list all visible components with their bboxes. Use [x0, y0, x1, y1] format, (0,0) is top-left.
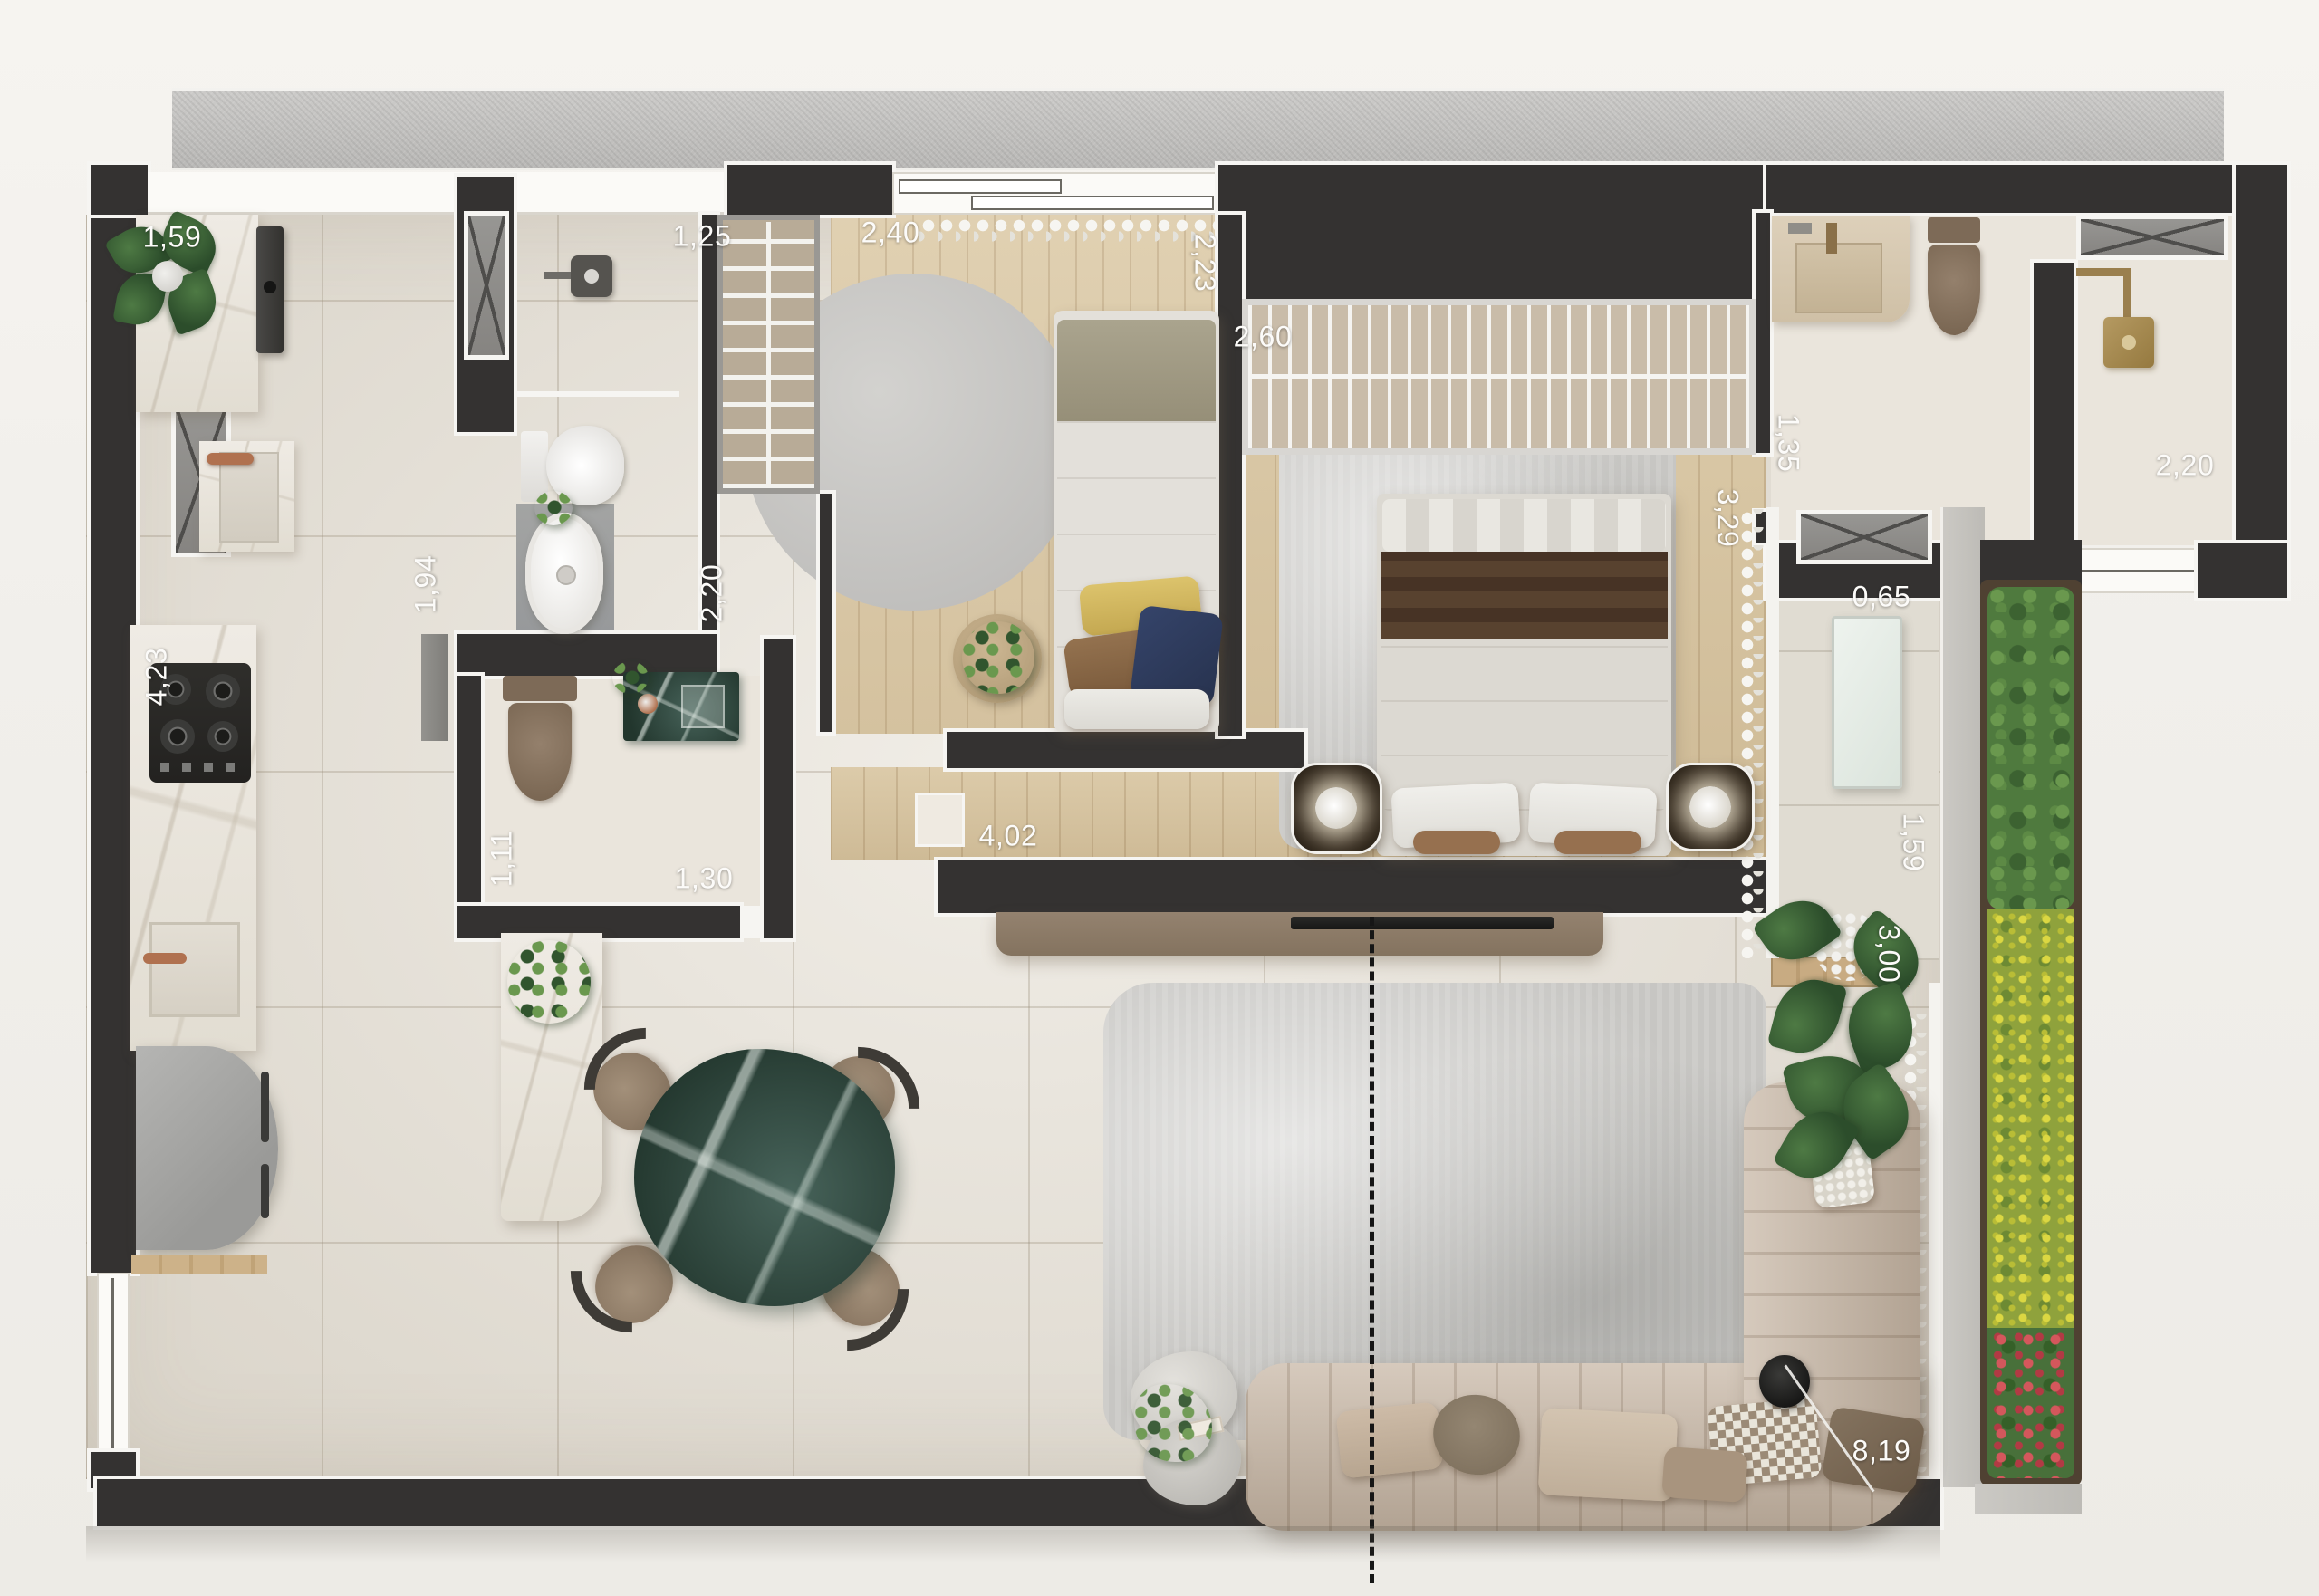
master-duvet	[1381, 639, 1668, 811]
showerhead-center	[584, 269, 599, 284]
bath1-shower-arm	[544, 272, 571, 279]
fridge-handle	[261, 1072, 269, 1142]
window-annex	[2071, 548, 2198, 593]
vanity-accessory	[1788, 223, 1812, 234]
kitchen-sink-2	[149, 922, 240, 1017]
dimension-label: 0,65	[1852, 581, 1911, 614]
sofa-pillow-3	[1538, 1408, 1679, 1502]
kitchen-sink-faucet-copper	[207, 453, 254, 465]
bed2-blanket-olive	[1057, 320, 1216, 421]
dimension-label: 2,20	[2156, 449, 2215, 483]
wall-bedroom2-south	[947, 732, 1304, 768]
dimension-label: 2,20	[696, 564, 729, 623]
garden-shrubs	[1987, 587, 2074, 909]
kitchen-tall-cabinet	[421, 634, 448, 741]
bedroom2-plant	[962, 621, 1034, 694]
wc-shower-gold	[2103, 317, 2154, 368]
wall-master-south	[938, 860, 1766, 913]
floor-hall-wood	[831, 767, 1304, 860]
window-bench-wood	[131, 1255, 267, 1274]
lavabo-toilet	[501, 676, 579, 803]
wall-top-master	[1218, 165, 1771, 303]
sink-basin	[219, 452, 279, 543]
nightstand-lamp	[1315, 787, 1357, 829]
toilet-tank	[503, 676, 577, 701]
hall-opening-jamb	[915, 793, 965, 847]
shaft-balcony	[1796, 510, 1932, 564]
bedroom2-bed	[1054, 311, 1219, 732]
wall-top-annex	[1766, 165, 2287, 213]
garden-base	[1975, 1484, 2082, 1514]
dimension-label: 8,19	[1852, 1435, 1911, 1468]
wall-bedroom2-west	[820, 494, 832, 732]
dimension-label: 1,30	[675, 862, 734, 896]
dimension-label: 3,29	[1711, 489, 1745, 548]
balcony-edge-strip	[1940, 507, 1985, 1487]
vanity-faucet	[1826, 223, 1837, 254]
master-duvet-top	[1382, 499, 1666, 552]
vase	[152, 261, 183, 292]
wc-shower-bar	[2076, 268, 2129, 276]
vanity-basin	[1795, 243, 1882, 313]
refrigerator	[136, 1046, 278, 1250]
sofa-pillow-small	[1661, 1447, 1748, 1503]
tv	[1291, 917, 1554, 929]
sofa-pillow-1	[1335, 1401, 1443, 1478]
dimension-label: 1,94	[409, 555, 443, 614]
bath1-toilet	[521, 426, 625, 507]
dimension-label: 2,60	[1234, 321, 1293, 354]
cooktop-knobs	[160, 763, 240, 772]
master-bed	[1377, 494, 1671, 856]
window-left	[97, 1273, 130, 1454]
bath1-tub	[525, 513, 603, 634]
dimension-label: 4,23	[140, 648, 174, 707]
dimension-label: 1,25	[673, 220, 732, 254]
lavabo-plant	[612, 661, 649, 694]
appliance-knob	[264, 281, 276, 293]
bath1-glass-divider	[516, 391, 679, 397]
kitchen-faucet-2-copper	[143, 953, 187, 964]
closet-rod	[766, 222, 771, 486]
bedroom2-closet	[717, 215, 820, 494]
window-annex-glassline	[2078, 570, 2194, 572]
dimension-label: 3,00	[1872, 925, 1906, 984]
master-wardrobe	[1242, 299, 1756, 455]
curtain-bedroom2	[919, 219, 1218, 246]
floor-plan: 1,59 1,25 2,40 2,23 2,60 1,35 2,20 3,29 …	[0, 0, 2319, 1596]
dimension-label: 4,02	[979, 820, 1038, 853]
master-blanket-brown	[1381, 552, 1668, 639]
wall-annex-divider	[2034, 263, 2074, 543]
window-bedroom2-pane-left	[899, 179, 1062, 194]
hall-band	[172, 88, 2224, 170]
bath1-showerhead	[571, 255, 612, 297]
bed2-pillow-white	[1064, 689, 1209, 729]
nightstand-right	[1669, 765, 1752, 849]
toilet-tank	[1928, 217, 1980, 243]
toilet-bowl	[1928, 245, 1980, 335]
master-pillow-brown-left	[1413, 831, 1500, 854]
toilet-bowl	[508, 703, 572, 801]
wall-lavabo-right	[764, 639, 793, 938]
entry-recess	[148, 172, 727, 215]
burner	[206, 674, 240, 708]
bath1-plant	[534, 491, 573, 525]
shower-center	[2122, 335, 2136, 350]
kitchen-wall-appliance	[256, 226, 284, 353]
leaf	[1766, 971, 1847, 1061]
masterbath-toilet	[1924, 217, 1984, 337]
dimension-label: 1,35	[1772, 414, 1805, 473]
dimension-label: 1,11	[486, 831, 519, 887]
lavabo-basin	[681, 685, 725, 728]
island-plant	[507, 940, 591, 1024]
garden-red-roses	[1987, 1328, 2074, 1478]
wall-lavabo-left	[457, 676, 481, 913]
wall-right-annex	[2236, 165, 2287, 598]
lavabo-door-jamb	[740, 906, 764, 938]
master-pillow-brown-right	[1554, 831, 1641, 854]
section-line	[1370, 917, 1374, 1583]
window-bedroom2	[892, 172, 1218, 215]
curtain-master-balcony	[1741, 509, 1768, 958]
dimension-label: 1,59	[1897, 813, 1930, 872]
wall-top-kitchen-corner	[91, 165, 148, 215]
garden-yellow-flowers	[1987, 909, 2074, 1328]
side-table-black-round	[1759, 1355, 1810, 1408]
wall-top-mid	[727, 165, 892, 215]
toilet-tank	[521, 431, 548, 502]
balcony-counter	[1832, 616, 1902, 789]
burner	[160, 719, 195, 754]
wall-bedroom2-master	[1218, 215, 1242, 736]
dimension-label: 2,40	[861, 216, 920, 250]
masterbath-vanity	[1772, 216, 1910, 322]
fridge-handle	[261, 1164, 269, 1218]
building-shadow	[86, 1526, 1940, 1562]
nightstand-left	[1294, 765, 1380, 851]
nightstand-lamp	[1689, 786, 1731, 828]
tub-drain	[556, 565, 576, 585]
shaft-bath1	[464, 211, 509, 360]
burner	[207, 721, 238, 752]
shaft-annex	[2076, 215, 2228, 260]
window-left-glassline	[111, 1278, 114, 1452]
dimension-label: 1,59	[143, 221, 202, 255]
lavabo-faucet-copper	[638, 694, 658, 714]
wall-bottom-annex-right	[2198, 543, 2287, 598]
wardrobe-rod	[1252, 374, 1746, 379]
wc-shower-pipe	[2123, 268, 2131, 321]
glass-master-balcony	[1766, 507, 1779, 958]
wall-annex-west-upper	[1756, 213, 1770, 453]
wall-bath1-lavabo	[457, 634, 717, 676]
dimension-label: 2,23	[1188, 234, 1222, 293]
window-bedroom2-pane-right	[971, 196, 1214, 210]
